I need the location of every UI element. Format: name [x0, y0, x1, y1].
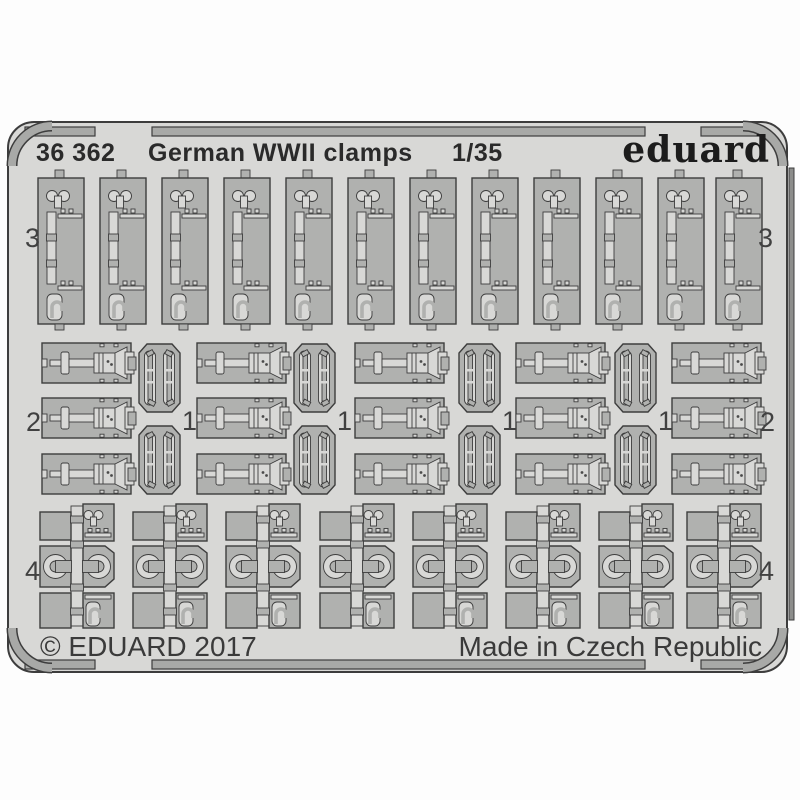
pe-part-3-strip [348, 170, 394, 330]
part-number-1-d: 1 [658, 406, 673, 436]
pe-part-2-clamp [197, 343, 291, 383]
part-number-3-right: 3 [758, 223, 773, 253]
pe-part-3-strip [534, 170, 580, 330]
pe-part-4-clamp [320, 504, 394, 628]
scale-label: 1/35 [452, 139, 503, 167]
part-number-4-right: 4 [759, 556, 774, 586]
catalog-number: 36 362 [36, 139, 115, 167]
pe-part-4-clamp [226, 504, 300, 628]
photo-canvas: 36 362 German WWII clamps 1/35 eduard [0, 0, 800, 800]
pe-part-4-clamp [599, 504, 673, 628]
pe-part-1-band-pair [139, 426, 180, 494]
copyright-text: © EDUARD 2017 [40, 631, 257, 662]
pe-part-1-band-pair [459, 426, 500, 494]
pe-part-2-clamp [197, 454, 291, 494]
pe-part-3-strip [658, 170, 704, 330]
pe-part-2-clamp [197, 398, 291, 438]
photo-etch-fret-photo: 36 362 German WWII clamps 1/35 eduard [0, 0, 800, 800]
pe-part-3-strip [162, 170, 208, 330]
pe-part-3-strip [716, 170, 762, 330]
pe-part-2-clamp [355, 398, 449, 438]
pe-part-1-band-pair [615, 426, 656, 494]
pe-part-2-clamp [516, 454, 610, 494]
pe-part-3-strip [410, 170, 456, 330]
part-number-2-right: 2 [760, 407, 775, 437]
pe-part-4-clamp [687, 504, 761, 628]
pe-part-3-strip [472, 170, 518, 330]
part-number-1-b: 1 [337, 406, 352, 436]
pe-part-2-clamp [42, 343, 136, 383]
pe-part-1-band-pair [459, 344, 500, 412]
pe-part-2-clamp [355, 454, 449, 494]
pe-part-2-clamp [672, 343, 766, 383]
pe-part-3-strip [286, 170, 332, 330]
part-number-4-left: 4 [25, 556, 40, 586]
pe-part-2-clamp [672, 454, 766, 494]
pe-part-3-strip [596, 170, 642, 330]
pe-part-2-clamp [672, 398, 766, 438]
pe-part-2-clamp [42, 398, 136, 438]
product-name: German WWII clamps [148, 139, 413, 167]
pe-part-1-band-pair [294, 344, 335, 412]
pe-part-2-clamp [355, 343, 449, 383]
pe-part-4-clamp [40, 504, 114, 628]
pe-part-3-strip [100, 170, 146, 330]
pe-part-3-strip [38, 170, 84, 330]
pe-part-1-band-pair [615, 344, 656, 412]
part-number-2-left: 2 [26, 407, 41, 437]
pe-part-1-band-pair [139, 344, 180, 412]
pe-part-3-strip [224, 170, 270, 330]
pe-part-4-clamp [506, 504, 580, 628]
part-number-1-a: 1 [182, 406, 197, 436]
part-number-1-c: 1 [502, 406, 517, 436]
part-number-3-left: 3 [25, 223, 40, 253]
pe-part-2-clamp [516, 398, 610, 438]
pe-part-2-clamp [516, 343, 610, 383]
pe-part-2-clamp [42, 454, 136, 494]
fret-edge-sliver [789, 168, 794, 620]
origin-text: Made in Czech Republic [459, 631, 763, 662]
eduard-logo: eduard [622, 129, 770, 171]
pe-part-1-band-pair [294, 426, 335, 494]
pe-part-4-clamp [413, 504, 487, 628]
pe-part-4-clamp [133, 504, 207, 628]
